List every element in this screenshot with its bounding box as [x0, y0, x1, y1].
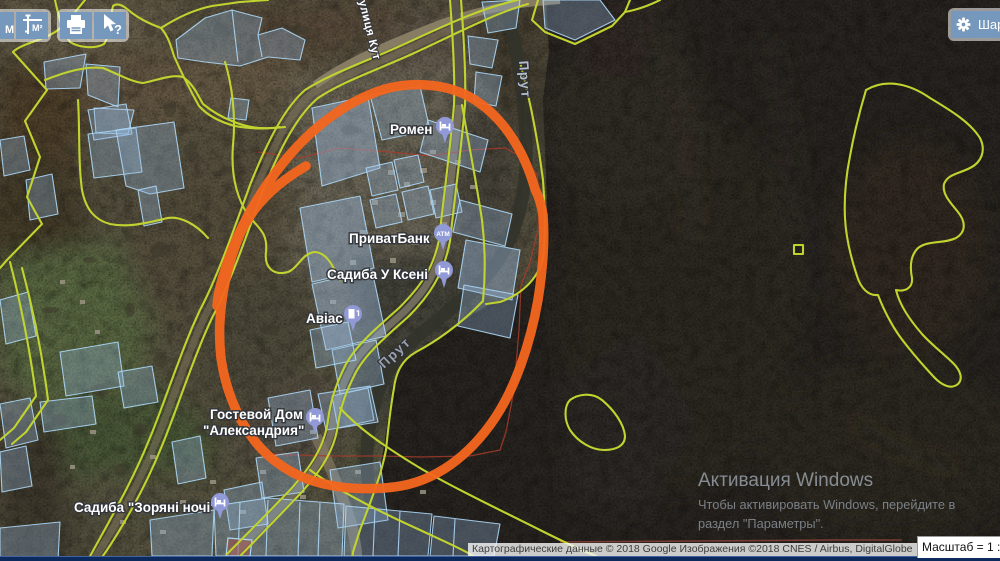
svg-text:Чтобы активировать Windows, пе: Чтобы активировать Windows, перейдите в — [698, 497, 956, 512]
svg-text:ПриватБанк: ПриватБанк — [349, 231, 430, 246]
svg-text:?: ? — [114, 22, 122, 37]
svg-text:"Александрия": "Александрия" — [203, 423, 304, 438]
svg-text:Садиба У Ксені: Садиба У Ксені — [327, 267, 428, 282]
svg-text:Ромен: Ромен — [390, 122, 432, 137]
svg-text:М²: М² — [32, 23, 43, 33]
svg-text:Гостевой Дом: Гостевой Дом — [210, 407, 303, 422]
svg-text:ATM: ATM — [436, 231, 450, 238]
svg-text:Aвiас: Aвiас — [306, 311, 343, 326]
svg-text:раздел "Параметры".: раздел "Параметры". — [698, 516, 824, 531]
svg-text:Садиба "Зоряні ночі": Садиба "Зоряні ночі" — [74, 500, 217, 515]
svg-text:Активация Windows: Активация Windows — [698, 470, 873, 491]
svg-text:Прут: Прут — [516, 60, 534, 99]
